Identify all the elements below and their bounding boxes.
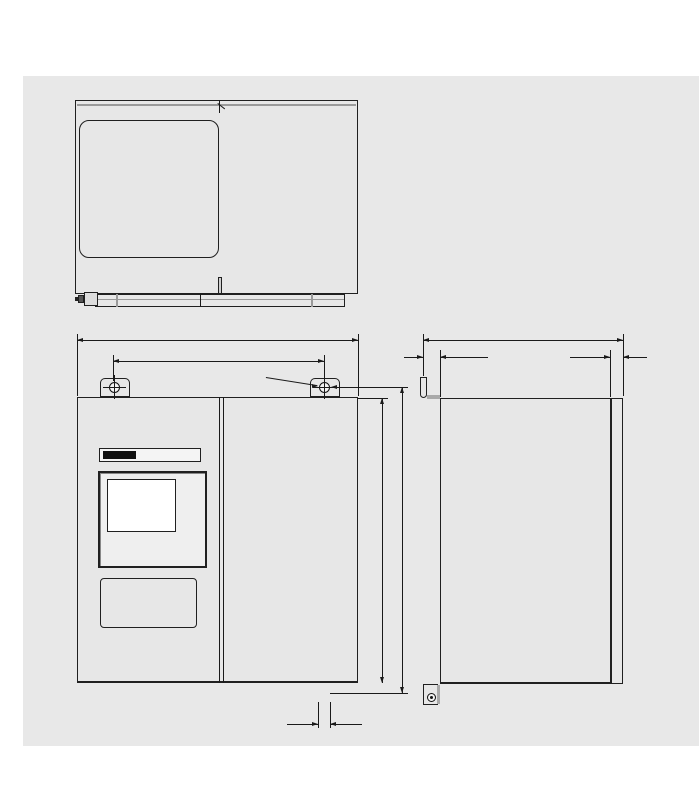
brand-logo — [103, 451, 136, 459]
lower-door-plate — [100, 578, 197, 628]
side-view-body — [440, 398, 611, 684]
arrow-up — [380, 398, 384, 404]
dim-line-480 — [402, 387, 403, 693]
arrow-left — [623, 355, 629, 359]
arrow-right — [312, 722, 318, 726]
arrow-left — [113, 359, 119, 363]
ext-line — [324, 355, 325, 381]
arrow-down — [380, 677, 384, 683]
bottom-bracket-lip — [437, 685, 440, 704]
arrow-right — [617, 338, 623, 342]
ext-line — [610, 350, 611, 397]
arrow-left — [440, 355, 446, 359]
ext-line — [318, 702, 319, 728]
front-door-gap-right — [223, 397, 224, 683]
dim-line-444 — [382, 398, 383, 683]
arrow-to-hole — [312, 384, 318, 388]
side-view-door-edge — [611, 398, 623, 684]
dim-line-311 — [423, 340, 623, 341]
arrow-left — [423, 338, 429, 342]
wall-hook-lip — [427, 395, 440, 399]
arrow-to-hole-right — [331, 385, 337, 389]
dim-line-438 — [77, 340, 358, 341]
arrow-right — [318, 359, 324, 363]
display-screen — [107, 479, 176, 532]
ext-line — [623, 334, 624, 396]
arrow-right — [352, 338, 358, 342]
dim-line-328 — [113, 361, 324, 362]
arrow-left — [77, 338, 83, 342]
arrow-right — [604, 355, 610, 359]
hole-leader-right — [332, 387, 408, 388]
ext-line — [77, 334, 78, 396]
arrow-right — [417, 355, 423, 359]
dimension-drawing-page — [0, 0, 699, 794]
wall-hook — [420, 377, 427, 398]
arrow-up — [400, 387, 404, 393]
tab-left-crossline — [103, 387, 126, 388]
arrow-left — [330, 722, 336, 726]
ext-line — [330, 693, 408, 694]
ext-line — [358, 398, 388, 399]
bottom-bracket-hole-center — [430, 696, 433, 699]
front-door-gap-left — [219, 397, 220, 683]
dim-line-265 — [440, 357, 488, 358]
